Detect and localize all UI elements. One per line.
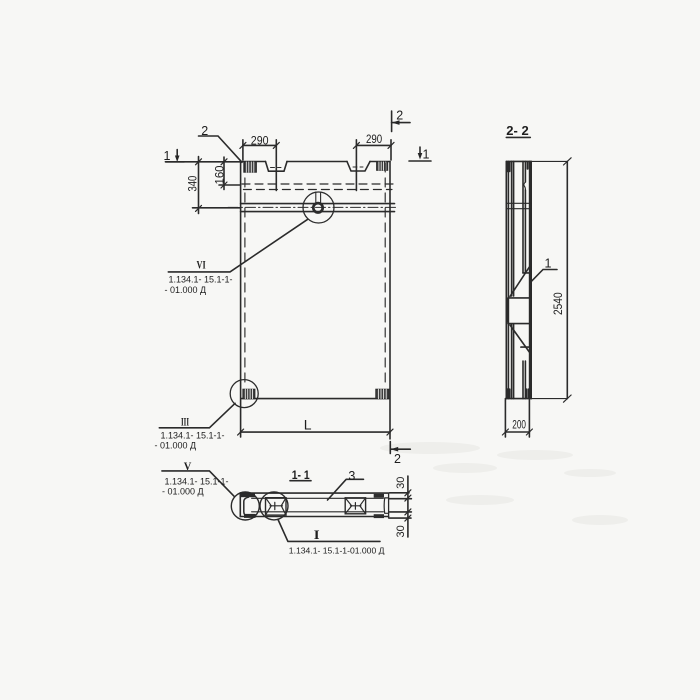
svg-text:1.134.1- 15.1-1-: 1.134.1- 15.1-1-	[169, 275, 233, 285]
svg-text:200: 200	[512, 420, 526, 432]
svg-text:- 01.000 Д: - 01.000 Д	[162, 487, 204, 497]
svg-text:30: 30	[395, 477, 407, 489]
svg-text:1.134.1- 15.1-1-01.000 Д: 1.134.1- 15.1-1-01.000 Д	[289, 546, 385, 556]
svg-text:2540: 2540	[551, 292, 565, 315]
svg-text:1.134.1- 15.1-1-: 1.134.1- 15.1-1-	[161, 431, 225, 441]
svg-text:3: 3	[348, 469, 355, 483]
svg-text:290: 290	[366, 132, 382, 146]
svg-text:2: 2	[201, 124, 208, 138]
svg-text:I: I	[314, 528, 320, 542]
svg-text:III: III	[181, 417, 189, 429]
svg-text:- 01.000 Д: - 01.000 Д	[155, 441, 197, 451]
svg-text:L: L	[304, 417, 312, 433]
svg-text:V: V	[184, 461, 192, 473]
svg-text:1.134.1- 15.1-1-: 1.134.1- 15.1-1-	[165, 477, 229, 487]
svg-text:1- 1: 1- 1	[292, 468, 310, 482]
svg-text:30: 30	[395, 525, 407, 537]
svg-text:160: 160	[213, 165, 227, 184]
svg-text:- 01.000 Д: - 01.000 Д	[165, 285, 207, 295]
svg-text:2: 2	[394, 452, 401, 466]
svg-text:1: 1	[423, 148, 430, 162]
svg-text:1: 1	[545, 256, 552, 270]
svg-text:340: 340	[186, 175, 200, 191]
svg-text:VI: VI	[197, 260, 207, 272]
svg-text:290: 290	[251, 134, 269, 148]
svg-text:2: 2	[396, 109, 403, 123]
svg-text:1: 1	[164, 149, 171, 163]
svg-text:2- 2: 2- 2	[506, 124, 528, 138]
